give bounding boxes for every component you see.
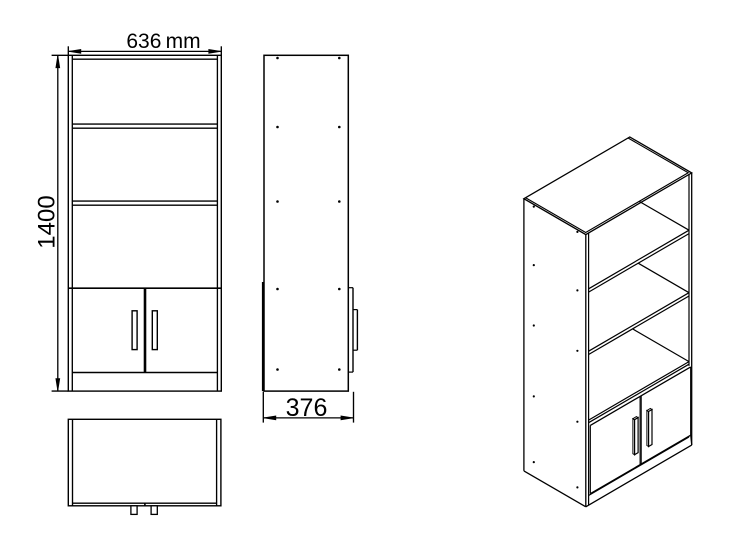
svg-text:1400: 1400 xyxy=(34,195,61,248)
svg-text:376: 376 xyxy=(286,394,328,422)
svg-text:636 mm: 636 mm xyxy=(126,30,200,53)
